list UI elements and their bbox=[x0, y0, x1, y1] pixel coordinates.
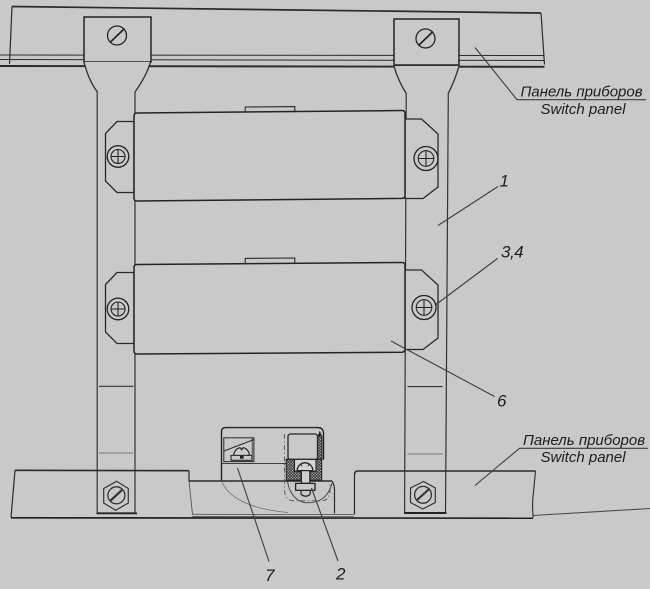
svg-text:Switch panel: Switch panel bbox=[541, 101, 627, 118]
svg-text:Панель приборов: Панель приборов bbox=[523, 432, 645, 449]
svg-text:Панель приборов: Панель приборов bbox=[521, 84, 643, 101]
svg-text:1: 1 bbox=[500, 172, 509, 191]
svg-text:Switch panel: Switch panel bbox=[541, 449, 627, 466]
svg-text:2: 2 bbox=[335, 565, 346, 584]
svg-text:7: 7 bbox=[265, 566, 275, 585]
svg-text:6: 6 bbox=[497, 392, 507, 411]
svg-text:3,4: 3,4 bbox=[501, 243, 523, 262]
